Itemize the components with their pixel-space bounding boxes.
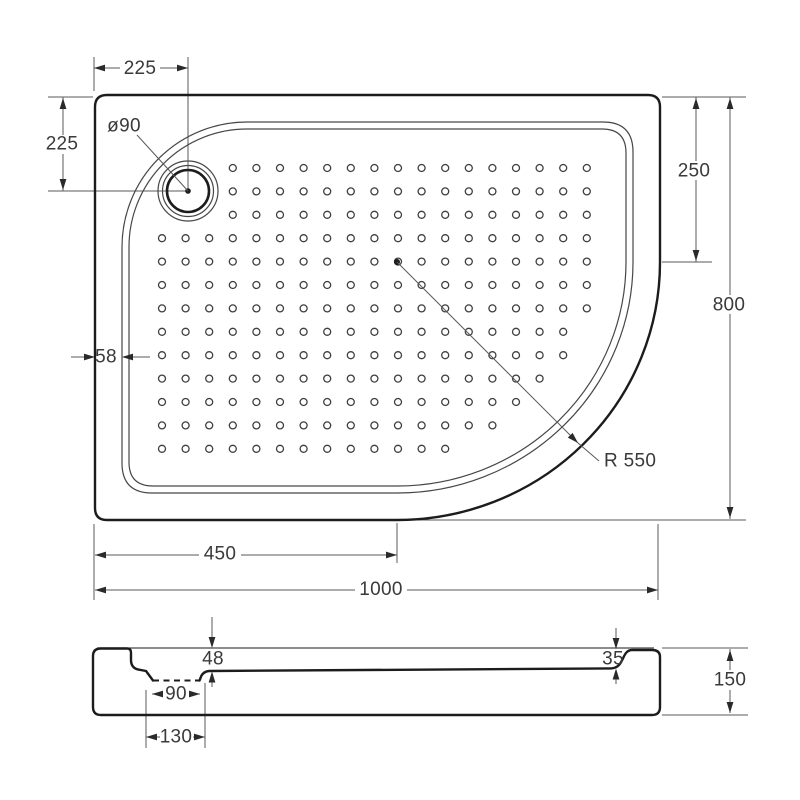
anti-slip-dot: [253, 235, 260, 242]
anti-slip-dot: [536, 352, 543, 359]
anti-slip-dot: [513, 165, 520, 172]
anti-slip-dot: [442, 282, 449, 289]
anti-slip-dot: [418, 165, 425, 172]
anti-slip-dot: [442, 399, 449, 406]
anti-slip-dot: [300, 258, 307, 265]
dim-label-drain-diameter: ø90: [107, 116, 141, 137]
anti-slip-dot: [371, 399, 378, 406]
anti-slip-dot: [442, 352, 449, 359]
anti-slip-dot: [253, 328, 260, 335]
anti-slip-dot: [489, 235, 496, 242]
anti-slip-dot: [277, 445, 284, 452]
anti-slip-dot: [418, 399, 425, 406]
anti-slip-dot: [277, 399, 284, 406]
anti-slip-dot: [347, 165, 354, 172]
anti-slip-dot: [347, 258, 354, 265]
corner-radius-leader: [394, 259, 599, 461]
anti-slip-dot: [442, 258, 449, 265]
anti-slip-dot: [324, 282, 331, 289]
anti-slip-dot: [229, 399, 236, 406]
anti-slip-dot: [560, 235, 567, 242]
anti-slip-dot: [371, 328, 378, 335]
anti-slip-dot: [347, 188, 354, 195]
anti-slip-dot: [465, 422, 472, 429]
anti-slip-dot: [324, 328, 331, 335]
anti-slip-dot: [324, 399, 331, 406]
anti-slip-dot: [560, 188, 567, 195]
anti-slip-dot: [300, 422, 307, 429]
anti-slip-dot: [324, 445, 331, 452]
anti-slip-dot: [583, 188, 590, 195]
anti-slip-dot: [465, 282, 472, 289]
anti-slip-dot: [324, 422, 331, 429]
anti-slip-dot: [371, 352, 378, 359]
anti-slip-dot: [277, 422, 284, 429]
anti-slip-dot: [300, 235, 307, 242]
anti-slip-dot: [347, 399, 354, 406]
anti-slip-dot: [489, 375, 496, 382]
anti-slip-dot: [489, 282, 496, 289]
anti-slip-dot: [300, 211, 307, 218]
anti-slip-dot: [418, 352, 425, 359]
anti-slip-dot: [347, 305, 354, 312]
anti-slip-dot: [513, 305, 520, 312]
anti-slip-dot: [395, 445, 402, 452]
anti-slip-dot: [583, 258, 590, 265]
dim-label-total-height: 150: [714, 670, 747, 691]
anti-slip-dot: [442, 375, 449, 382]
anti-slip-dot: [277, 211, 284, 218]
anti-slip-dot: [206, 399, 213, 406]
anti-slip-dot: [418, 375, 425, 382]
anti-slip-dot: [229, 258, 236, 265]
anti-slip-dot: [347, 375, 354, 382]
anti-slip-dot: [229, 211, 236, 218]
anti-slip-dot: [513, 211, 520, 218]
anti-slip-dot: [465, 258, 472, 265]
anti-slip-dot: [442, 165, 449, 172]
anti-slip-dot: [159, 445, 166, 452]
anti-slip-dot: [277, 188, 284, 195]
anti-slip-dot: [253, 258, 260, 265]
anti-slip-dot: [206, 328, 213, 335]
anti-slip-dot: [465, 352, 472, 359]
arrowheads: [146, 637, 733, 740]
anti-slip-dot: [229, 422, 236, 429]
anti-slip-dot: [395, 165, 402, 172]
anti-slip-dot: [253, 375, 260, 382]
anti-slip-dot: [513, 399, 520, 406]
anti-slip-dot: [324, 352, 331, 359]
anti-slip-dot: [489, 211, 496, 218]
anti-slip-dot: [371, 165, 378, 172]
anti-slip-dot: [277, 375, 284, 382]
profile-outline: [93, 649, 660, 716]
anti-slip-dot: [300, 188, 307, 195]
anti-slip-dot: [513, 328, 520, 335]
extension-lines: [146, 648, 748, 748]
top-view: 225 225 ø90 58 250 800 R 550 450 1000: [43, 57, 750, 600]
anti-slip-dot: [536, 375, 543, 382]
anti-slip-dot: [513, 235, 520, 242]
anti-slip-dot: [182, 422, 189, 429]
anti-slip-dot: [465, 375, 472, 382]
anti-slip-dot: [418, 445, 425, 452]
anti-slip-dot: [489, 305, 496, 312]
anti-slip-dot: [489, 258, 496, 265]
anti-slip-dot: [159, 305, 166, 312]
anti-slip-dot: [253, 399, 260, 406]
anti-slip-dot: [253, 165, 260, 172]
anti-slip-dot: [182, 399, 189, 406]
anti-slip-dot: [465, 305, 472, 312]
anti-slip-dot: [324, 305, 331, 312]
anti-slip-dot: [347, 328, 354, 335]
dim-label-drain-offset-left: 225: [46, 134, 79, 155]
anti-slip-dot: [159, 258, 166, 265]
anti-slip-dot: [395, 422, 402, 429]
anti-slip-dot: [253, 305, 260, 312]
anti-slip-dot: [489, 422, 496, 429]
dim-label-width: 1000: [359, 579, 402, 600]
anti-slip-dot: [206, 282, 213, 289]
anti-slip-dot: [206, 352, 213, 359]
anti-slip-dot: [206, 422, 213, 429]
anti-slip-dot: [395, 328, 402, 335]
anti-slip-dot: [395, 235, 402, 242]
anti-slip-dot: [300, 445, 307, 452]
anti-slip-dot: [229, 352, 236, 359]
anti-slip-dot: [300, 305, 307, 312]
anti-slip-dot: [536, 211, 543, 218]
anti-slip-dot: [182, 328, 189, 335]
anti-slip-dot: [560, 328, 567, 335]
anti-slip-dot: [324, 375, 331, 382]
anti-slip-dot: [560, 165, 567, 172]
anti-slip-dot: [347, 352, 354, 359]
dim-label-drain-offset-top: 225: [124, 58, 157, 79]
anti-slip-dot: [418, 258, 425, 265]
shower-tray-technical-drawing: 225 225 ø90 58 250 800 R 550 450 1000: [0, 0, 800, 800]
anti-slip-dot: [536, 328, 543, 335]
anti-slip-dot: [465, 235, 472, 242]
anti-slip-dot: [371, 282, 378, 289]
dim-label-corner-radius: R 550: [604, 451, 656, 472]
anti-slip-dot: [229, 375, 236, 382]
anti-slip-dot: [300, 352, 307, 359]
anti-slip-dot: [324, 235, 331, 242]
anti-slip-dot: [182, 445, 189, 452]
anti-slip-dot: [182, 235, 189, 242]
anti-slip-dot: [229, 282, 236, 289]
anti-slip-dot: [206, 235, 213, 242]
anti-slip-dot: [277, 352, 284, 359]
anti-slip-dot: [182, 305, 189, 312]
anti-slip-dot: [159, 375, 166, 382]
anti-slip-dot: [324, 165, 331, 172]
anti-slip-dot: [347, 422, 354, 429]
anti-slip-dot: [253, 282, 260, 289]
anti-slip-dot: [395, 305, 402, 312]
anti-slip-dot: [489, 328, 496, 335]
dim-label-floor-depth-drain: 48: [202, 649, 224, 670]
anti-slip-dot: [418, 328, 425, 335]
anti-slip-dot: [347, 211, 354, 218]
anti-slip-dot: [395, 352, 402, 359]
anti-slip-dot: [277, 235, 284, 242]
anti-slip-dot: [182, 282, 189, 289]
dim-label-floor-depth-edge: 35: [602, 649, 624, 670]
anti-slip-dot: [560, 282, 567, 289]
anti-slip-dot: [371, 305, 378, 312]
anti-slip-dot: [395, 375, 402, 382]
anti-slip-dot: [536, 188, 543, 195]
anti-slip-dot: [583, 235, 590, 242]
anti-slip-dot: [371, 211, 378, 218]
anti-slip-dot: [513, 258, 520, 265]
anti-slip-dot: [253, 211, 260, 218]
anti-slip-dot: [182, 352, 189, 359]
anti-slip-dot: [277, 165, 284, 172]
anti-slip-dot: [465, 188, 472, 195]
anti-slip-dot: [536, 165, 543, 172]
anti-slip-dot: [371, 258, 378, 265]
anti-slip-dot: [159, 352, 166, 359]
anti-slip-dot: [277, 282, 284, 289]
anti-slip-dot: [324, 258, 331, 265]
anti-slip-dot: [206, 305, 213, 312]
anti-slip-dot: [206, 258, 213, 265]
anti-slip-dot: [229, 328, 236, 335]
anti-slip-dot: [418, 282, 425, 289]
anti-slip-dot: [536, 235, 543, 242]
anti-slip-dot: [583, 305, 590, 312]
anti-slip-dot: [418, 422, 425, 429]
anti-slip-dot: [513, 188, 520, 195]
anti-slip-dot: [159, 328, 166, 335]
anti-slip-dot: [159, 235, 166, 242]
anti-slip-dot: [277, 328, 284, 335]
dim-label-bottom-straight: 450: [204, 544, 237, 565]
technical-drawing-page: 225 225 ø90 58 250 800 R 550 450 1000: [0, 0, 800, 800]
anti-slip-dot: [182, 258, 189, 265]
anti-slip-dot: [395, 282, 402, 289]
anti-slip-dot: [560, 211, 567, 218]
anti-slip-dot: [347, 445, 354, 452]
dimension-lines: [146, 617, 730, 737]
anti-slip-dot: [300, 399, 307, 406]
anti-slip-dot: [300, 282, 307, 289]
anti-slip-dot: [300, 328, 307, 335]
anti-slip-dot: [489, 399, 496, 406]
anti-slip-dot: [229, 188, 236, 195]
anti-slip-dot: [277, 305, 284, 312]
anti-slip-dot: [347, 282, 354, 289]
anti-slip-dot: [442, 422, 449, 429]
anti-slip-dot: [395, 188, 402, 195]
anti-slip-dot: [583, 211, 590, 218]
anti-slip-dot: [465, 399, 472, 406]
anti-slip-dot: [253, 445, 260, 452]
anti-slip-dot: [560, 305, 567, 312]
anti-slip-dot: [159, 399, 166, 406]
anti-slip-dot: [442, 445, 449, 452]
anti-slip-dot: [300, 375, 307, 382]
anti-slip-dot: [418, 235, 425, 242]
anti-slip-dot: [253, 188, 260, 195]
dim-label-recess-top-width: 90: [165, 684, 187, 705]
anti-slip-dot: [560, 258, 567, 265]
anti-slip-dot: [371, 422, 378, 429]
anti-slip-dot: [442, 211, 449, 218]
anti-slip-dot: [371, 188, 378, 195]
anti-slip-dot: [536, 258, 543, 265]
anti-slip-dot: [182, 375, 189, 382]
dim-label-rim-width: 58: [95, 347, 117, 368]
anti-slip-dot: [206, 375, 213, 382]
anti-slip-dot: [489, 188, 496, 195]
anti-slip-dot: [513, 282, 520, 289]
dim-label-corner-start: 250: [678, 161, 711, 182]
anti-slip-dot: [465, 165, 472, 172]
anti-slip-dot: [324, 188, 331, 195]
anti-slip-dot: [159, 282, 166, 289]
dim-label-height: 800: [713, 295, 746, 316]
anti-slip-dot: [229, 305, 236, 312]
anti-slip-dot: [442, 188, 449, 195]
anti-slip-dot: [229, 445, 236, 452]
anti-slip-dot: [442, 328, 449, 335]
anti-slip-dot: [418, 188, 425, 195]
anti-slip-dot: [277, 258, 284, 265]
anti-slip-dot: [395, 399, 402, 406]
anti-slip-dot: [418, 211, 425, 218]
anti-slip-dot: [229, 165, 236, 172]
anti-slip-dot: [206, 445, 213, 452]
anti-slip-dot: [560, 352, 567, 359]
anti-slip-dot: [371, 235, 378, 242]
anti-slip-dot: [442, 235, 449, 242]
section-view: 48 35 90 130 150: [93, 617, 751, 748]
anti-slip-dot: [536, 305, 543, 312]
anti-slip-dot: [513, 352, 520, 359]
anti-slip-dot: [418, 305, 425, 312]
dim-label-recess-base-width: 130: [160, 727, 193, 748]
drain-diameter-leader: [137, 135, 188, 191]
anti-slip-dot: [347, 235, 354, 242]
anti-slip-dots: [159, 165, 591, 453]
anti-slip-dot: [300, 165, 307, 172]
anti-slip-dot: [371, 375, 378, 382]
anti-slip-dot: [536, 282, 543, 289]
anti-slip-dot: [371, 445, 378, 452]
anti-slip-dot: [465, 211, 472, 218]
anti-slip-dot: [253, 352, 260, 359]
anti-slip-dot: [159, 422, 166, 429]
anti-slip-dot: [583, 165, 590, 172]
anti-slip-dot: [324, 211, 331, 218]
anti-slip-dot: [229, 235, 236, 242]
anti-slip-dot: [253, 422, 260, 429]
anti-slip-dot: [583, 282, 590, 289]
anti-slip-dot: [395, 211, 402, 218]
anti-slip-dot: [489, 165, 496, 172]
